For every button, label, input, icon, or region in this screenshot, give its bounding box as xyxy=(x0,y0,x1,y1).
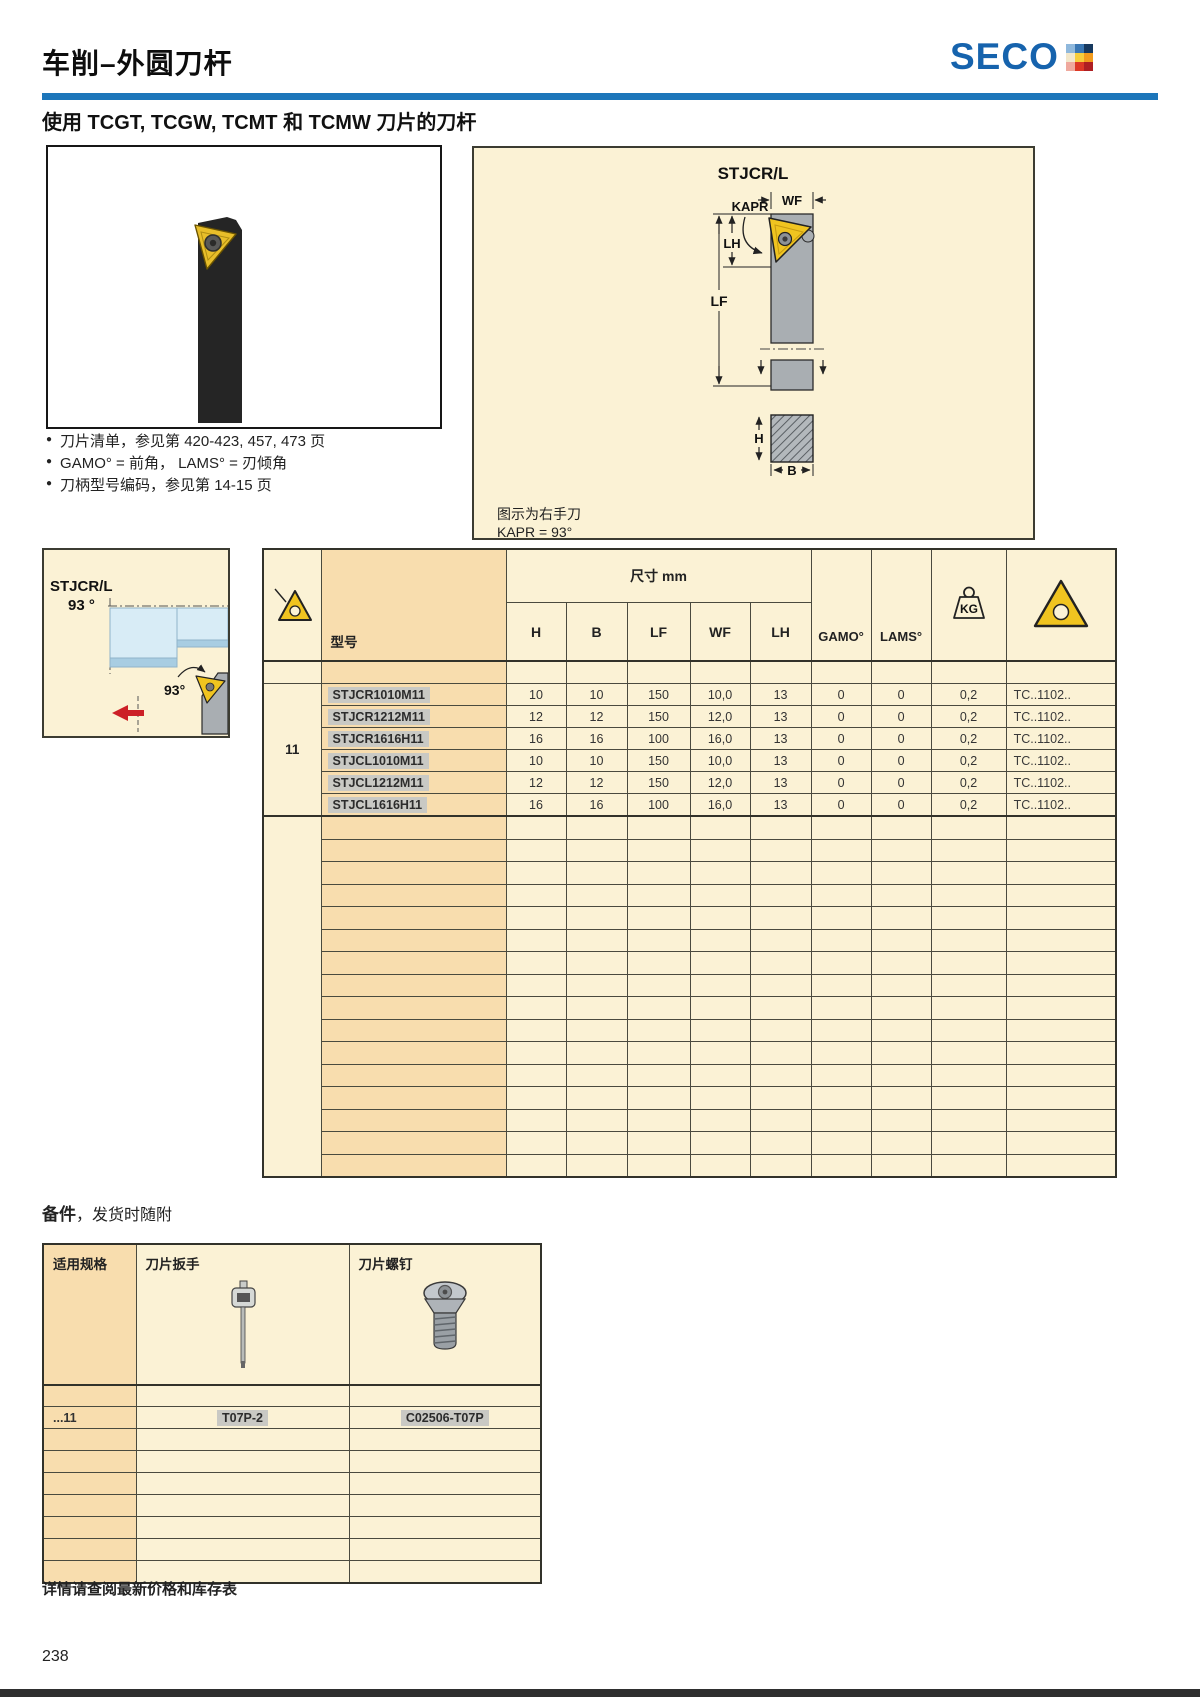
table-row: STJCL1616H11 1616 10016,0 130 00,2 TC..1… xyxy=(263,794,1116,817)
bullet-icon: ● xyxy=(46,473,52,495)
bullet-icon: ● xyxy=(46,451,52,473)
empty-row xyxy=(263,862,1116,885)
catalog-page: 车削–外圆刀杆 SECO 使用 TCGT, TCGW, TCMT 和 TCMW … xyxy=(0,0,1200,1697)
bullet-text: 刀片清单，参见第 420-423, 457, 473 页 xyxy=(60,430,325,451)
diagram-note-2: KAPR = 93° xyxy=(497,524,572,538)
model-cell: STJCL1010M11 xyxy=(328,753,429,769)
bullet-icon: ● xyxy=(46,429,52,451)
empty-row xyxy=(43,1451,541,1473)
accessories-header-row: 适用规格 刀片扳手 刀片螺钉 xyxy=(43,1244,541,1385)
empty-row xyxy=(43,1473,541,1495)
page-number: 238 xyxy=(42,1648,69,1666)
insert-edge-icon xyxy=(263,549,321,661)
spec-value: ...11 xyxy=(43,1407,136,1429)
accessories-title-bold: 备件 xyxy=(42,1205,76,1224)
weight-kg-icon: KG xyxy=(931,549,1006,661)
spacer-row xyxy=(263,661,1116,684)
application-drawing: STJCR/L 93 ° 93° xyxy=(44,550,228,736)
insert-shape-icon xyxy=(1006,549,1116,661)
group-label: 11 xyxy=(285,742,299,757)
page-title: 车削–外圆刀杆 xyxy=(42,42,233,82)
kg-label: KG xyxy=(960,602,978,616)
dim-lh-label: LH xyxy=(723,236,740,251)
table-row: STJCR1616H11 1616 10016,0 130 00,2 TC..1… xyxy=(263,728,1116,750)
empty-row xyxy=(263,952,1116,975)
empty-row xyxy=(263,816,1116,839)
side-panel-angle: 93 ° xyxy=(68,597,95,614)
table-row: STJCL1212M11 1212 15012,0 130 00,2 TC..1… xyxy=(263,772,1116,794)
product-photo xyxy=(46,145,442,429)
diagram-title: STJCR/L xyxy=(718,164,789,183)
notes-list: ●刀片清单，参见第 420-423, 457, 473 页 ●GAMO° = 前… xyxy=(46,429,325,495)
empty-row xyxy=(263,1019,1116,1042)
side-panel-title: STJCR/L xyxy=(50,578,113,595)
wrench-part-number: T07P-2 xyxy=(217,1410,268,1426)
empty-row xyxy=(263,974,1116,997)
wrench-column-header: 刀片扳手 xyxy=(137,1245,349,1273)
feed-direction-arrow xyxy=(112,705,144,721)
dim-lf-label: LF xyxy=(710,293,728,309)
empty-row xyxy=(263,997,1116,1020)
insert-screw-icon xyxy=(350,1277,541,1357)
dim-h-label: H xyxy=(754,431,763,446)
gamo-column-header: GAMO° xyxy=(811,549,871,661)
seco-logo-text: SECO xyxy=(950,42,1059,72)
accessories-title-rest: ，发货时随附 xyxy=(76,1207,172,1224)
table-row: STJCR1212M11 1212 15012,0 130 00,2 TC..1… xyxy=(263,706,1116,728)
model-column-header: 型号 xyxy=(321,549,506,661)
empty-row xyxy=(263,839,1116,862)
dimension-diagram-panel: STJCR/L WF KAPR LH xyxy=(472,146,1035,540)
seco-logo-grid-icon xyxy=(1066,44,1093,71)
table-header-row: 型号 尺寸 mm GAMO° LAMS° KG xyxy=(263,549,1116,603)
list-item: ●GAMO° = 前角， LAMS° = 刃倾角 xyxy=(46,451,325,473)
footer-note: 详情请查阅最新价格和库存表 xyxy=(42,1578,237,1599)
empty-row xyxy=(263,1042,1116,1065)
dim-b-label: B xyxy=(787,463,796,478)
dim-wf-label: WF xyxy=(782,193,802,208)
cross-section-drawing xyxy=(771,415,813,462)
bullet-text: GAMO° = 前角， LAMS° = 刃倾角 xyxy=(60,452,287,473)
lams-column-header: LAMS° xyxy=(871,549,931,661)
empty-row xyxy=(43,1539,541,1561)
col-header-lh: LH xyxy=(750,603,811,662)
accessories-title: 备件，发货时随附 xyxy=(42,1200,172,1225)
page-bottom-bar xyxy=(0,1689,1200,1697)
toolholder-dimension-drawing: STJCR/L WF KAPR LH xyxy=(474,148,1033,538)
application-panel: STJCR/L 93 ° 93° xyxy=(42,548,230,738)
empty-row xyxy=(263,1064,1116,1087)
empty-row xyxy=(263,884,1116,907)
empty-row xyxy=(263,1109,1116,1132)
col-header-b: B xyxy=(566,603,627,662)
angle-callout: 93° xyxy=(164,682,185,698)
col-header-h: H xyxy=(506,603,566,662)
empty-row xyxy=(43,1429,541,1451)
table-row: STJCL1010M11 1010 15010,0 130 00,2 TC..1… xyxy=(263,750,1116,772)
model-cell: STJCR1010M11 xyxy=(328,687,430,703)
header-divider xyxy=(42,93,1158,100)
table-row: 11 STJCR1010M11 10 10 150 10,0 13 0 0 0,… xyxy=(263,684,1116,706)
diagram-note-1: 图示为右手刀 xyxy=(497,506,581,522)
model-cell: STJCL1616H11 xyxy=(328,797,428,813)
screw-column-header: 刀片螺钉 xyxy=(350,1245,541,1273)
spacer-row xyxy=(43,1385,541,1407)
accessories-data-row: ...11 T07P-2 C02506-T07P xyxy=(43,1407,541,1429)
col-header-lf: LF xyxy=(627,603,690,662)
bullet-text: 刀柄型号编码，参见第 14-15 页 xyxy=(60,474,272,495)
screw-part-number: C02506-T07P xyxy=(401,1410,489,1426)
toolholder-photo-drawing xyxy=(48,147,436,423)
model-cell: STJCR1616H11 xyxy=(328,731,429,747)
empty-row xyxy=(263,1132,1116,1155)
model-cell: STJCR1212M11 xyxy=(328,709,430,725)
workpiece-drawing xyxy=(110,608,177,658)
section-subtitle: 使用 TCGT, TCGW, TCMT 和 TCMW 刀片的刀杆 xyxy=(42,106,476,135)
seco-logo: SECO xyxy=(950,42,1093,72)
list-item: ●刀片清单，参见第 420-423, 457, 473 页 xyxy=(46,429,325,451)
empty-row xyxy=(43,1495,541,1517)
size-mm-header: 尺寸 mm xyxy=(506,549,811,603)
empty-row xyxy=(263,1087,1116,1110)
dim-kapr-label: KAPR xyxy=(732,199,769,214)
list-item: ●刀柄型号编码，参见第 14-15 页 xyxy=(46,473,325,495)
empty-row xyxy=(263,907,1116,930)
spec-column-header: 适用规格 xyxy=(44,1245,136,1273)
accessories-table: 适用规格 刀片扳手 刀片螺钉 xyxy=(42,1243,542,1584)
model-cell: STJCL1212M11 xyxy=(328,775,429,791)
main-product-table: 型号 尺寸 mm GAMO° LAMS° KG xyxy=(262,548,1117,1178)
empty-row xyxy=(263,1154,1116,1177)
empty-row xyxy=(263,929,1116,952)
col-header-wf: WF xyxy=(690,603,750,662)
empty-row xyxy=(43,1517,541,1539)
torx-wrench-icon xyxy=(137,1277,349,1373)
